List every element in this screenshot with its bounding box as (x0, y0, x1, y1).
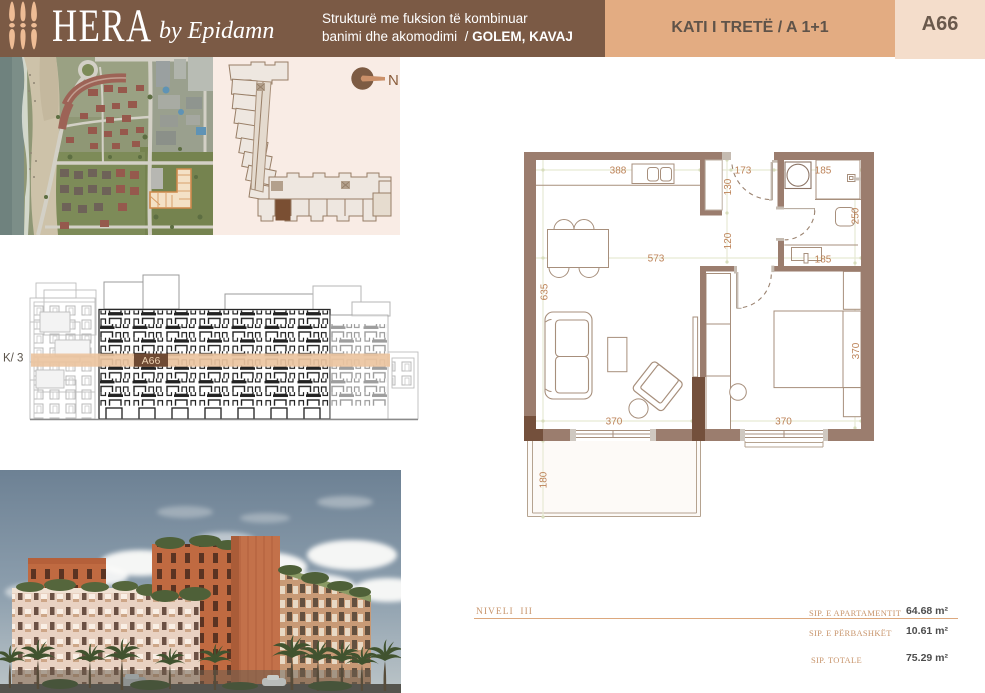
svg-text:180: 180 (539, 471, 550, 488)
svg-text:635: 635 (540, 283, 551, 300)
svg-text:573: 573 (648, 254, 665, 265)
svg-text:250: 250 (851, 207, 862, 224)
svg-text:370: 370 (851, 342, 862, 359)
svg-text:185: 185 (815, 255, 832, 266)
svg-text:A66: A66 (142, 355, 161, 367)
svg-text:120: 120 (723, 232, 734, 249)
svg-text:K/ 3: K/ 3 (3, 353, 23, 365)
svg-text:388: 388 (610, 166, 627, 177)
svg-text:370: 370 (606, 417, 623, 428)
svg-text:370: 370 (775, 417, 792, 428)
svg-text:173: 173 (735, 166, 752, 177)
svg-text:130: 130 (723, 178, 734, 195)
svg-text:N: N (388, 72, 399, 89)
svg-text:185: 185 (815, 166, 832, 177)
